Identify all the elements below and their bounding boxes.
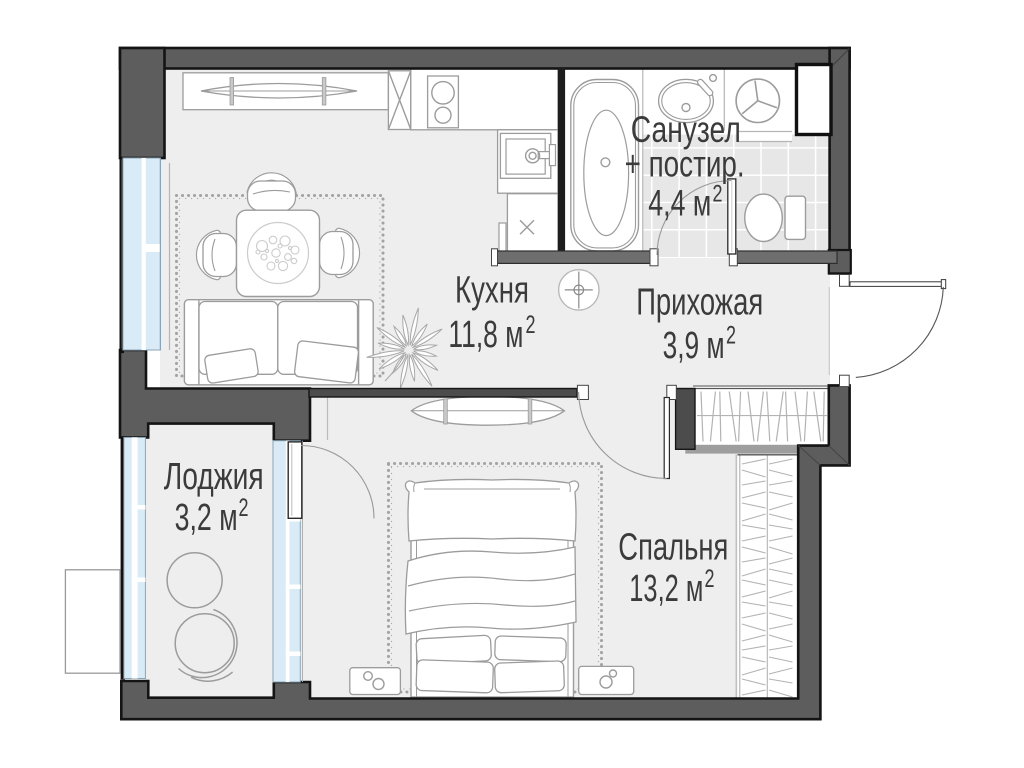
svg-text:2: 2 bbox=[726, 322, 736, 350]
svg-text:Лоджия: Лоджия bbox=[164, 456, 264, 498]
svg-text:Прихожая: Прихожая bbox=[636, 281, 763, 323]
svg-text:3,2 м: 3,2 м bbox=[175, 497, 238, 539]
svg-text:11,8 м: 11,8 м bbox=[448, 314, 523, 356]
svg-text:2: 2 bbox=[713, 181, 723, 208]
svg-text:2: 2 bbox=[526, 311, 536, 339]
svg-text:13,2 м: 13,2 м bbox=[629, 568, 703, 610]
svg-text:Спальня: Спальня bbox=[618, 527, 728, 569]
svg-text:+ постир.: + постир. bbox=[625, 144, 745, 185]
svg-text:Кухня: Кухня bbox=[455, 270, 529, 312]
svg-text:4,4 м: 4,4 м bbox=[648, 183, 711, 224]
svg-text:3,9 м: 3,9 м bbox=[663, 325, 725, 367]
svg-text:2: 2 bbox=[239, 494, 249, 522]
svg-text:2: 2 bbox=[705, 565, 715, 593]
